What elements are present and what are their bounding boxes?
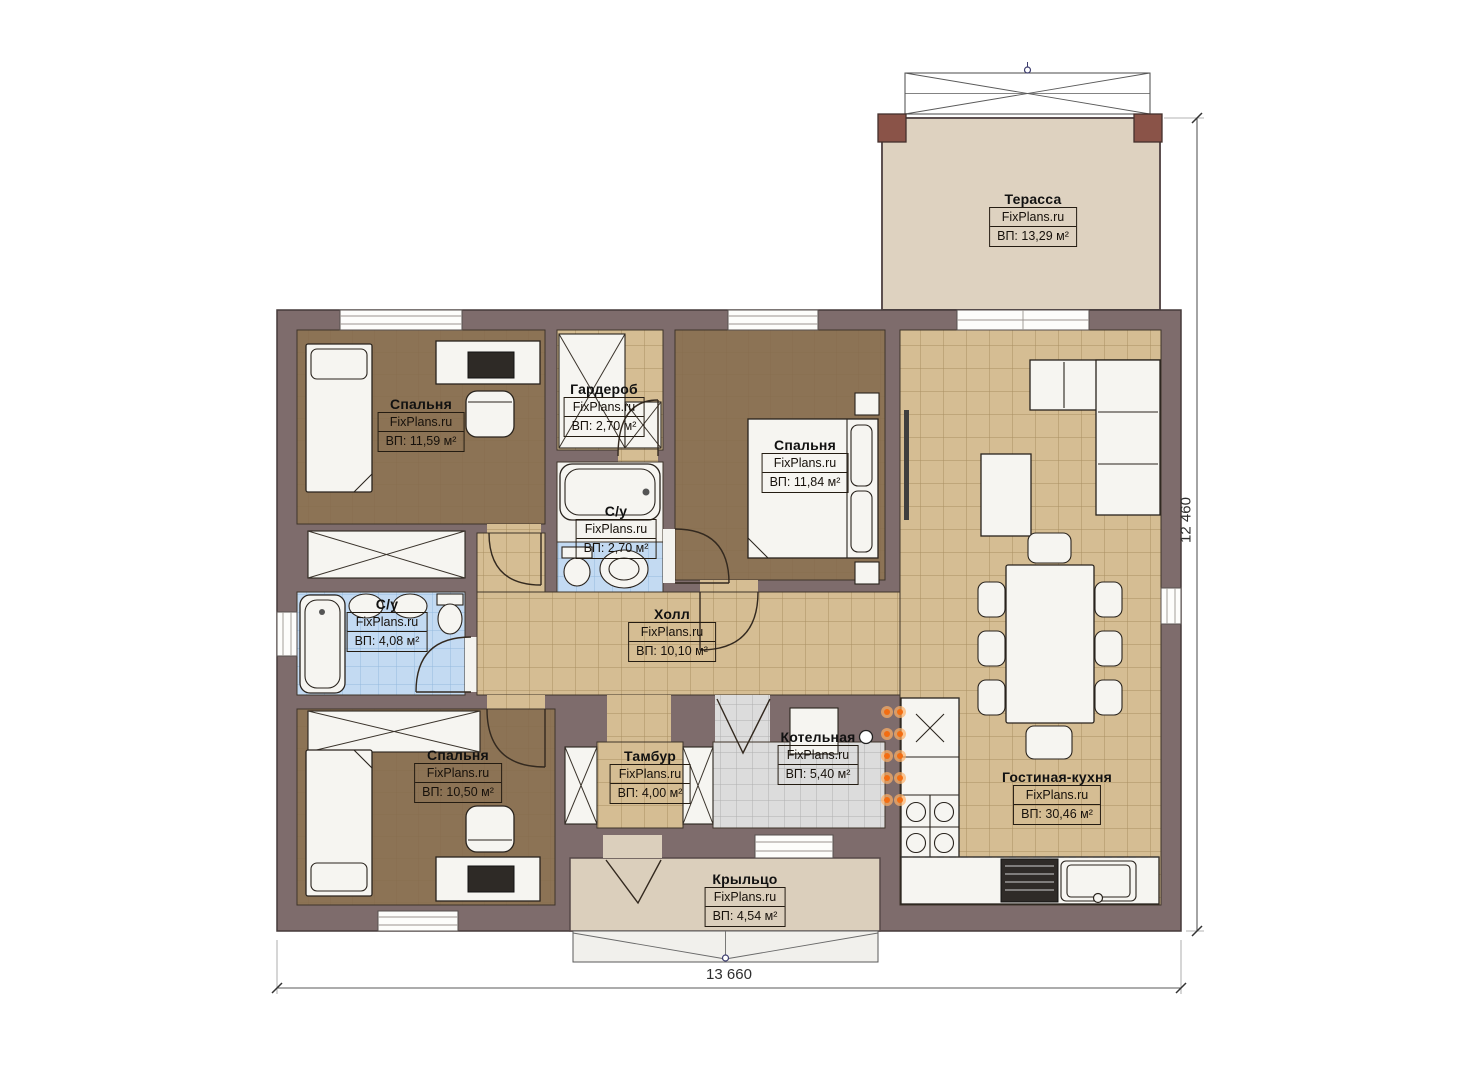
brand-label: FixPlans.ru (763, 454, 848, 472)
room-area: ВП: 2,70 м² (565, 416, 644, 435)
room-area: ВП: 11,84 м² (763, 472, 848, 491)
brand-label: FixPlans.ru (706, 888, 785, 906)
room-label-hall: Холл FixPlans.ru ВП: 10,10 м² (628, 606, 716, 662)
room-area: ВП: 10,50 м² (415, 782, 501, 801)
pillow (311, 863, 367, 891)
room-area: ВП: 30,46 м² (1014, 804, 1100, 823)
room-tag: FixPlans.ru ВП: 10,50 м² (414, 763, 502, 803)
room-tag: FixPlans.ru ВП: 10,10 м² (628, 622, 716, 662)
laptop (468, 352, 514, 378)
coffee-table (981, 454, 1031, 536)
room-tag: FixPlans.ru ВП: 4,00 м² (610, 764, 691, 804)
window-living (1161, 588, 1181, 624)
room-area: ВП: 11,59 м² (379, 431, 464, 450)
brand-label: FixPlans.ru (629, 623, 715, 641)
room-name: Гостиная-кухня (1002, 769, 1112, 785)
toilet (438, 604, 462, 634)
chair (978, 582, 1005, 617)
brand-label: FixPlans.ru (779, 746, 858, 764)
brand-label: FixPlans.ru (348, 613, 427, 631)
room-tag: FixPlans.ru ВП: 4,54 м² (705, 887, 786, 927)
terrace-column (878, 114, 906, 142)
chair (978, 631, 1005, 666)
nightstand (855, 393, 879, 415)
boiler-symbol (860, 731, 873, 744)
room-area: ВП: 13,29 м² (990, 226, 1076, 245)
room-label-vestibule: Тамбур FixPlans.ru ВП: 4,00 м² (610, 748, 691, 804)
room-name: Спальня (378, 396, 465, 412)
room-name: Спальня (414, 747, 502, 763)
room-label-bedroom-1: Спальня FixPlans.ru ВП: 11,59 м² (378, 396, 465, 452)
room-name: С/у (347, 596, 428, 612)
room-name: Гардероб (564, 381, 645, 397)
floor-hall-stub (477, 533, 545, 592)
pillow (311, 349, 367, 379)
room-tag: FixPlans.ru ВП: 13,29 м² (989, 207, 1077, 247)
window-boiler-room (755, 835, 833, 858)
room-tag: FixPlans.ru ВП: 4,08 м² (347, 612, 428, 652)
room-area: ВП: 4,00 м² (611, 783, 690, 802)
chair (1026, 726, 1072, 759)
room-label-living-kitchen: Гостиная-кухня FixPlans.ru ВП: 30,46 м² (1002, 769, 1112, 825)
room-area: ВП: 10,10 м² (629, 641, 715, 660)
toilet (564, 558, 590, 586)
dimension-width: 13 660 (706, 966, 752, 983)
chair (1095, 582, 1122, 617)
closet-bedroom-1 (308, 531, 465, 578)
room-name: Котельная (778, 729, 859, 745)
closet-vestibule-left (565, 747, 597, 824)
brand-label: FixPlans.ru (415, 764, 501, 782)
pillow (851, 425, 872, 486)
dimension-height: 12 460 (1178, 497, 1195, 543)
window-bedroom-3 (378, 911, 458, 931)
window-bedroom-1 (340, 310, 462, 330)
room-tag: FixPlans.ru ВП: 30,46 м² (1013, 785, 1101, 825)
room-label-bathroom-large: С/у FixPlans.ru ВП: 4,08 м² (347, 596, 428, 652)
room-name: Крыльцо (705, 871, 786, 887)
room-area: ВП: 2,70 м² (577, 538, 656, 557)
room-tag: FixPlans.ru ВП: 11,84 м² (762, 453, 849, 493)
room-name: Холл (628, 606, 716, 622)
chair (1095, 631, 1122, 666)
brand-label: FixPlans.ru (611, 765, 690, 783)
nightstand (855, 562, 879, 584)
terrace-column (1134, 114, 1162, 142)
brand-label: FixPlans.ru (565, 398, 644, 416)
entry-door-opening (603, 835, 662, 858)
window-bedroom-2 (728, 310, 818, 330)
brand-label: FixPlans.ru (1014, 786, 1100, 804)
floor-plan-page: Терасса FixPlans.ru ВП: 13,29 м² Спальня… (0, 0, 1473, 1080)
room-label-bedroom-3: Спальня FixPlans.ru ВП: 10,50 м² (414, 747, 502, 803)
toilet-tank (437, 594, 463, 605)
room-tag: FixPlans.ru ВП: 2,70 м² (576, 519, 657, 559)
chair (1095, 680, 1122, 715)
room-tag: FixPlans.ru ВП: 2,70 м² (564, 397, 645, 437)
room-name: С/у (576, 503, 657, 519)
brand-label: FixPlans.ru (577, 520, 656, 538)
faucet (1094, 894, 1103, 903)
dishwasher (1001, 859, 1058, 902)
room-name: Спальня (762, 437, 849, 453)
window-terrace-door (957, 310, 1089, 330)
room-label-porch: Крыльцо FixPlans.ru ВП: 4,54 м² (705, 871, 786, 927)
room-label-boiler-room: Котельная FixPlans.ru ВП: 5,40 м² (778, 729, 859, 785)
laptop (468, 866, 514, 892)
room-area: ВП: 5,40 м² (779, 764, 858, 783)
chair (466, 806, 514, 852)
terrace-structure (878, 62, 1162, 310)
room-label-bathroom-small: С/у FixPlans.ru ВП: 2,70 м² (576, 503, 657, 559)
room-name: Тамбур (610, 748, 691, 764)
room-tag: FixPlans.ru ВП: 11,59 м² (378, 412, 465, 452)
sofa-right (1096, 360, 1160, 515)
chair (466, 391, 514, 437)
room-label-terrace: Терасса FixPlans.ru ВП: 13,29 м² (989, 191, 1077, 247)
room-tag: FixPlans.ru ВП: 5,40 м² (778, 745, 859, 785)
chair (978, 680, 1005, 715)
dining-table (1006, 565, 1094, 723)
window-bath-large (277, 612, 297, 656)
pillow (851, 491, 872, 552)
room-area: ВП: 4,54 м² (706, 906, 785, 925)
brand-label: FixPlans.ru (990, 208, 1076, 226)
brand-label: FixPlans.ru (379, 413, 464, 431)
chair (1028, 533, 1071, 563)
tv (904, 410, 909, 520)
room-label-bedroom-2: Спальня FixPlans.ru ВП: 11,84 м² (762, 437, 849, 493)
closet-bedroom-3 (308, 711, 480, 752)
room-area: ВП: 4,08 м² (348, 631, 427, 650)
room-label-wardrobe: Гардероб FixPlans.ru ВП: 2,70 м² (564, 381, 645, 437)
room-name: Терасса (989, 191, 1077, 207)
